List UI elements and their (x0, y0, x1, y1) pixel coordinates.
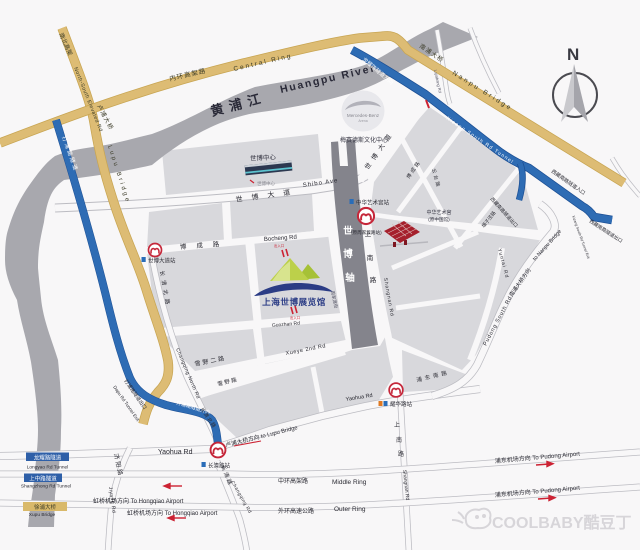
svg-text:Mercedes-Benz: Mercedes-Benz (347, 113, 380, 118)
svg-text:外环高速公路: 外环高速公路 (278, 507, 314, 515)
svg-text:耀华路站: 耀华路站 (390, 400, 413, 408)
svg-text:(原中国馆): (原中国馆) (428, 216, 450, 223)
svg-text:Xupu Bridge: Xupu Bridge (29, 512, 56, 518)
svg-text:中环高架路: 中环高架路 (278, 477, 308, 485)
svg-text:Outer Ring: Outer Ring (334, 506, 366, 513)
svg-text:COOLBABY酷豆丁: COOLBABY酷豆丁 (492, 513, 632, 532)
svg-text:博: 博 (343, 248, 353, 260)
svg-text:世博中心: 世博中心 (257, 180, 275, 187)
svg-text:上: 上 (394, 421, 400, 429)
svg-text:轴: 轴 (345, 272, 355, 284)
svg-text:中华艺术宫: 中华艺术宫 (426, 209, 451, 216)
svg-text:中华艺术宫站: 中华艺术宫站 (356, 199, 390, 207)
svg-text:上: 上 (365, 229, 372, 238)
svg-text:Shangzhong Rd Tunnel: Shangzhong Rd Tunnel (21, 484, 71, 490)
svg-text:路: 路 (370, 275, 377, 284)
svg-text:Middle Ring: Middle Ring (332, 479, 367, 486)
svg-text:上海世博展览馆: 上海世博展览馆 (262, 296, 326, 307)
svg-text:虹桥机场方向 To Hongqiao Airport: 虹桥机场方向 To Hongqiao Airport (93, 497, 184, 505)
svg-text:龙耀路隧道: 龙耀路隧道 (34, 454, 62, 462)
svg-text:南: 南 (367, 253, 374, 262)
svg-text:Arena: Arena (358, 119, 367, 123)
svg-text:出入口: 出入口 (274, 243, 284, 248)
svg-text:徐浦大桥: 徐浦大桥 (34, 503, 57, 511)
svg-text:N: N (567, 45, 579, 64)
svg-text:南: 南 (396, 436, 402, 444)
svg-text:路: 路 (398, 450, 404, 458)
svg-text:Longyao Rd Tunnel: Longyao Rd Tunnel (27, 465, 69, 471)
svg-text:Yaohua Rd: Yaohua Rd (158, 449, 193, 456)
svg-text:上中路隧道: 上中路隧道 (29, 475, 57, 483)
svg-text:出入口: 出入口 (290, 315, 300, 320)
svg-text:世博大道站: 世博大道站 (148, 257, 176, 265)
